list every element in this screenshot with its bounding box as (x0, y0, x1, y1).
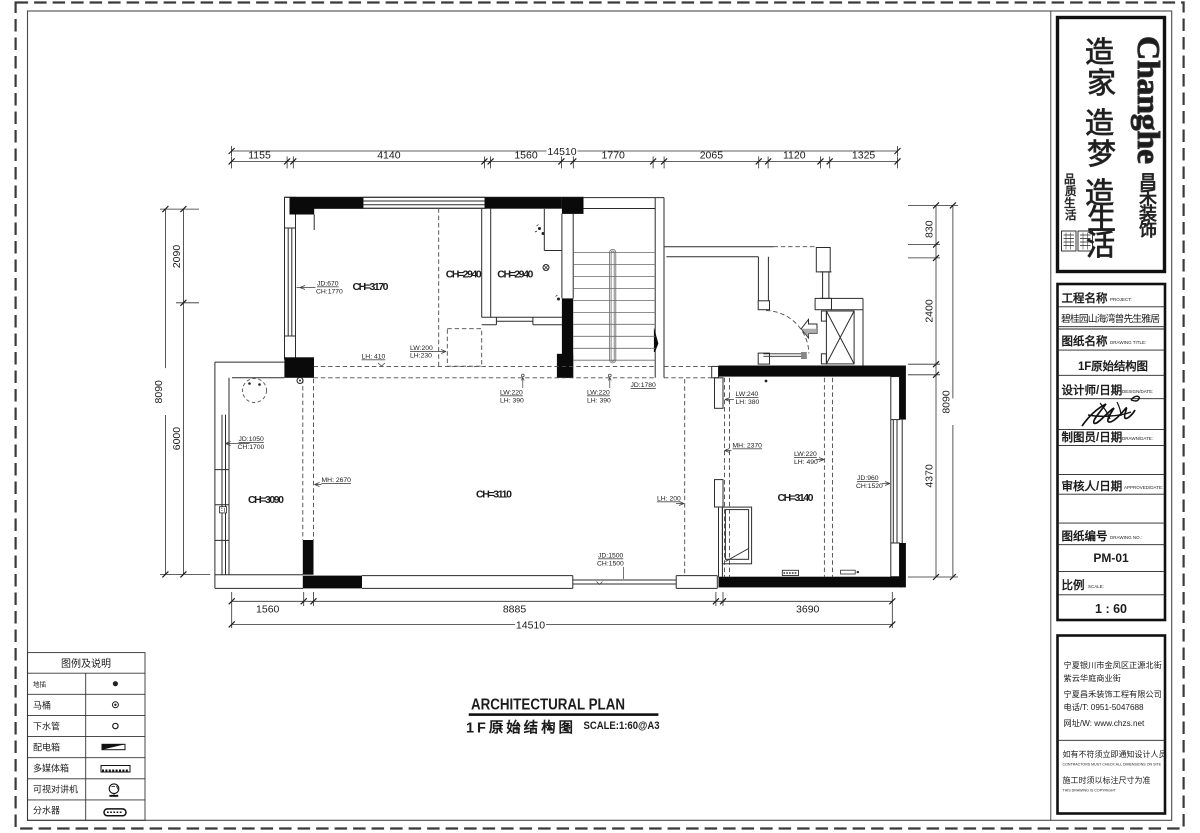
svg-text:APPROVED/DATE:: APPROVED/DATE: (1124, 485, 1163, 490)
svg-text:审核人/日期: 审核人/日期 (1062, 479, 1123, 493)
svg-text:1560: 1560 (256, 603, 280, 615)
svg-text:碧桂园山海湾曾先生雅居: 碧桂园山海湾曾先生雅居 (1061, 312, 1160, 325)
svg-text:造: 造 (1085, 107, 1114, 140)
svg-text:14510: 14510 (516, 620, 545, 632)
svg-text:1F原始结构图: 1F原始结构图 (1078, 359, 1148, 373)
svg-text:1770: 1770 (602, 150, 626, 162)
svg-text:8090: 8090 (153, 380, 165, 404)
svg-text:PROJECT:: PROJECT: (1110, 297, 1132, 302)
svg-text:配电箱: 配电箱 (33, 742, 60, 753)
svg-text:电话/T: 0951-5047688: 电话/T: 0951-5047688 (1064, 702, 1145, 712)
svg-text:设计师/日期: 设计师/日期 (1062, 383, 1123, 397)
svg-text:MH: 2370: MH: 2370 (733, 443, 763, 450)
svg-text:CH:1770: CH:1770 (316, 289, 343, 296)
svg-text:CH=3140: CH=3140 (778, 492, 814, 504)
svg-text:2090: 2090 (171, 245, 183, 269)
svg-text:2400: 2400 (924, 299, 936, 323)
svg-text:生: 生 (1064, 196, 1076, 210)
svg-text:DRAWING TITLE:: DRAWING TITLE: (1110, 340, 1146, 345)
svg-text:DESIGN/DATE:: DESIGN/DATE: (1122, 389, 1153, 394)
svg-text:830: 830 (924, 220, 936, 238)
svg-text:4370: 4370 (924, 464, 936, 488)
svg-text:图纸编号: 图纸编号 (1062, 529, 1108, 543)
svg-text:1120: 1120 (783, 150, 806, 162)
svg-text:马桶: 马桶 (33, 700, 51, 711)
svg-text:如有不符须立即通知设计人员: 如有不符须立即通知设计人员 (1063, 749, 1167, 759)
svg-text:4140: 4140 (377, 150, 401, 162)
svg-text:施工时须以标注尺寸为准: 施工时须以标注尺寸为准 (1063, 775, 1151, 785)
svg-text:JD:1780: JD:1780 (631, 382, 657, 389)
svg-text:LH: 200: LH: 200 (657, 496, 681, 503)
svg-text:紫云华庭商业街: 紫云华庭商业街 (1064, 673, 1121, 683)
svg-text:LW:220: LW:220 (794, 451, 817, 458)
svg-text:JD:960: JD:960 (857, 475, 879, 482)
svg-text:CH:1700: CH:1700 (238, 444, 265, 451)
svg-text:DRAWN/DATE:: DRAWN/DATE: (1122, 436, 1153, 441)
svg-text:SCALE:1:60@A3: SCALE:1:60@A3 (584, 720, 660, 732)
svg-text:图纸名称: 图纸名称 (1062, 334, 1108, 348)
svg-text:可视对讲机: 可视对讲机 (33, 784, 78, 795)
svg-text:2065: 2065 (700, 150, 724, 162)
svg-text:CH=2940: CH=2940 (446, 269, 482, 281)
svg-text:CH=3090: CH=3090 (248, 494, 284, 506)
svg-text:MH: 2670: MH: 2670 (322, 477, 352, 484)
svg-text:CONTRACTORS MUST CHECK ALL DIM: CONTRACTORS MUST CHECK ALL DIMENSIONS ON… (1063, 763, 1162, 767)
svg-text:CH=3110: CH=3110 (476, 489, 512, 501)
svg-text:LH: 380: LH: 380 (736, 399, 760, 406)
svg-text:6000: 6000 (171, 427, 183, 451)
svg-text:8885: 8885 (503, 603, 527, 615)
svg-text:CH:1520: CH:1520 (856, 483, 883, 490)
svg-text:宁夏银川市金凤区正源北街: 宁夏银川市金凤区正源北街 (1064, 660, 1162, 670)
svg-text:14510: 14510 (547, 146, 576, 158)
svg-text:分水器: 分水器 (33, 805, 60, 816)
svg-text:家: 家 (1087, 67, 1116, 100)
svg-text:LH: 390: LH: 390 (587, 398, 611, 405)
svg-text:LH: 390: LH: 390 (500, 398, 524, 405)
svg-text:CH:1500: CH:1500 (597, 561, 624, 568)
svg-text:JD:1500: JD:1500 (598, 553, 624, 560)
svg-text:LW:220: LW:220 (500, 390, 523, 397)
svg-text:JD:670: JD:670 (317, 281, 339, 288)
svg-text:CH=3170: CH=3170 (353, 281, 389, 293)
svg-text:造: 造 (1085, 36, 1114, 69)
svg-text:THIS DRAWING IS COPYRIGHT: THIS DRAWING IS COPYRIGHT (1063, 789, 1117, 793)
svg-text:3690: 3690 (796, 603, 820, 615)
svg-text:梦: 梦 (1087, 139, 1116, 171)
svg-text:地插: 地插 (33, 680, 47, 689)
svg-text:制图员/日期: 制图员/日期 (1062, 430, 1123, 444)
svg-text:LH: 410: LH: 410 (362, 354, 386, 361)
svg-text:CH=2940: CH=2940 (497, 269, 533, 281)
svg-text:多媒体箱: 多媒体箱 (33, 763, 69, 774)
svg-text:ARCHITECTURAL PLAN: ARCHITECTURAL PLAN (471, 697, 625, 714)
svg-text:1 : 60: 1 : 60 (1095, 602, 1127, 616)
svg-text:图例及说明: 图例及说明 (61, 657, 111, 670)
svg-text:1155: 1155 (248, 150, 271, 162)
svg-text:Changhe: Changhe (1131, 36, 1167, 164)
svg-text:1325: 1325 (852, 150, 876, 162)
svg-text:DRAWING NO.:: DRAWING NO.: (1110, 535, 1142, 540)
svg-text:1560: 1560 (514, 150, 538, 162)
svg-text:工程名称: 工程名称 (1062, 291, 1108, 305)
svg-text:SCALE:: SCALE: (1088, 584, 1104, 589)
svg-text:JD:1050: JD:1050 (239, 436, 265, 443)
svg-text:LH:230: LH:230 (410, 353, 432, 360)
svg-text:质: 质 (1065, 185, 1077, 198)
svg-text:LW:200: LW:200 (410, 345, 433, 352)
svg-text:下水管: 下水管 (33, 721, 60, 732)
svg-text:LW:220: LW:220 (587, 390, 610, 397)
svg-text:饰: 饰 (1139, 220, 1157, 240)
svg-text:8090: 8090 (940, 390, 952, 414)
svg-text:宁夏昌禾装饰工程有限公司: 宁夏昌禾装饰工程有限公司 (1064, 689, 1162, 699)
svg-text:比例: 比例 (1062, 578, 1085, 592)
svg-text:LW:240: LW:240 (736, 391, 759, 398)
svg-text:网址/W: www.chzs.net: 网址/W: www.chzs.net (1064, 718, 1146, 728)
svg-text:活: 活 (1065, 208, 1077, 222)
svg-text:品: 品 (1064, 173, 1076, 186)
svg-text:PM-01: PM-01 (1093, 551, 1129, 565)
svg-text:LH: 490: LH: 490 (794, 459, 818, 466)
